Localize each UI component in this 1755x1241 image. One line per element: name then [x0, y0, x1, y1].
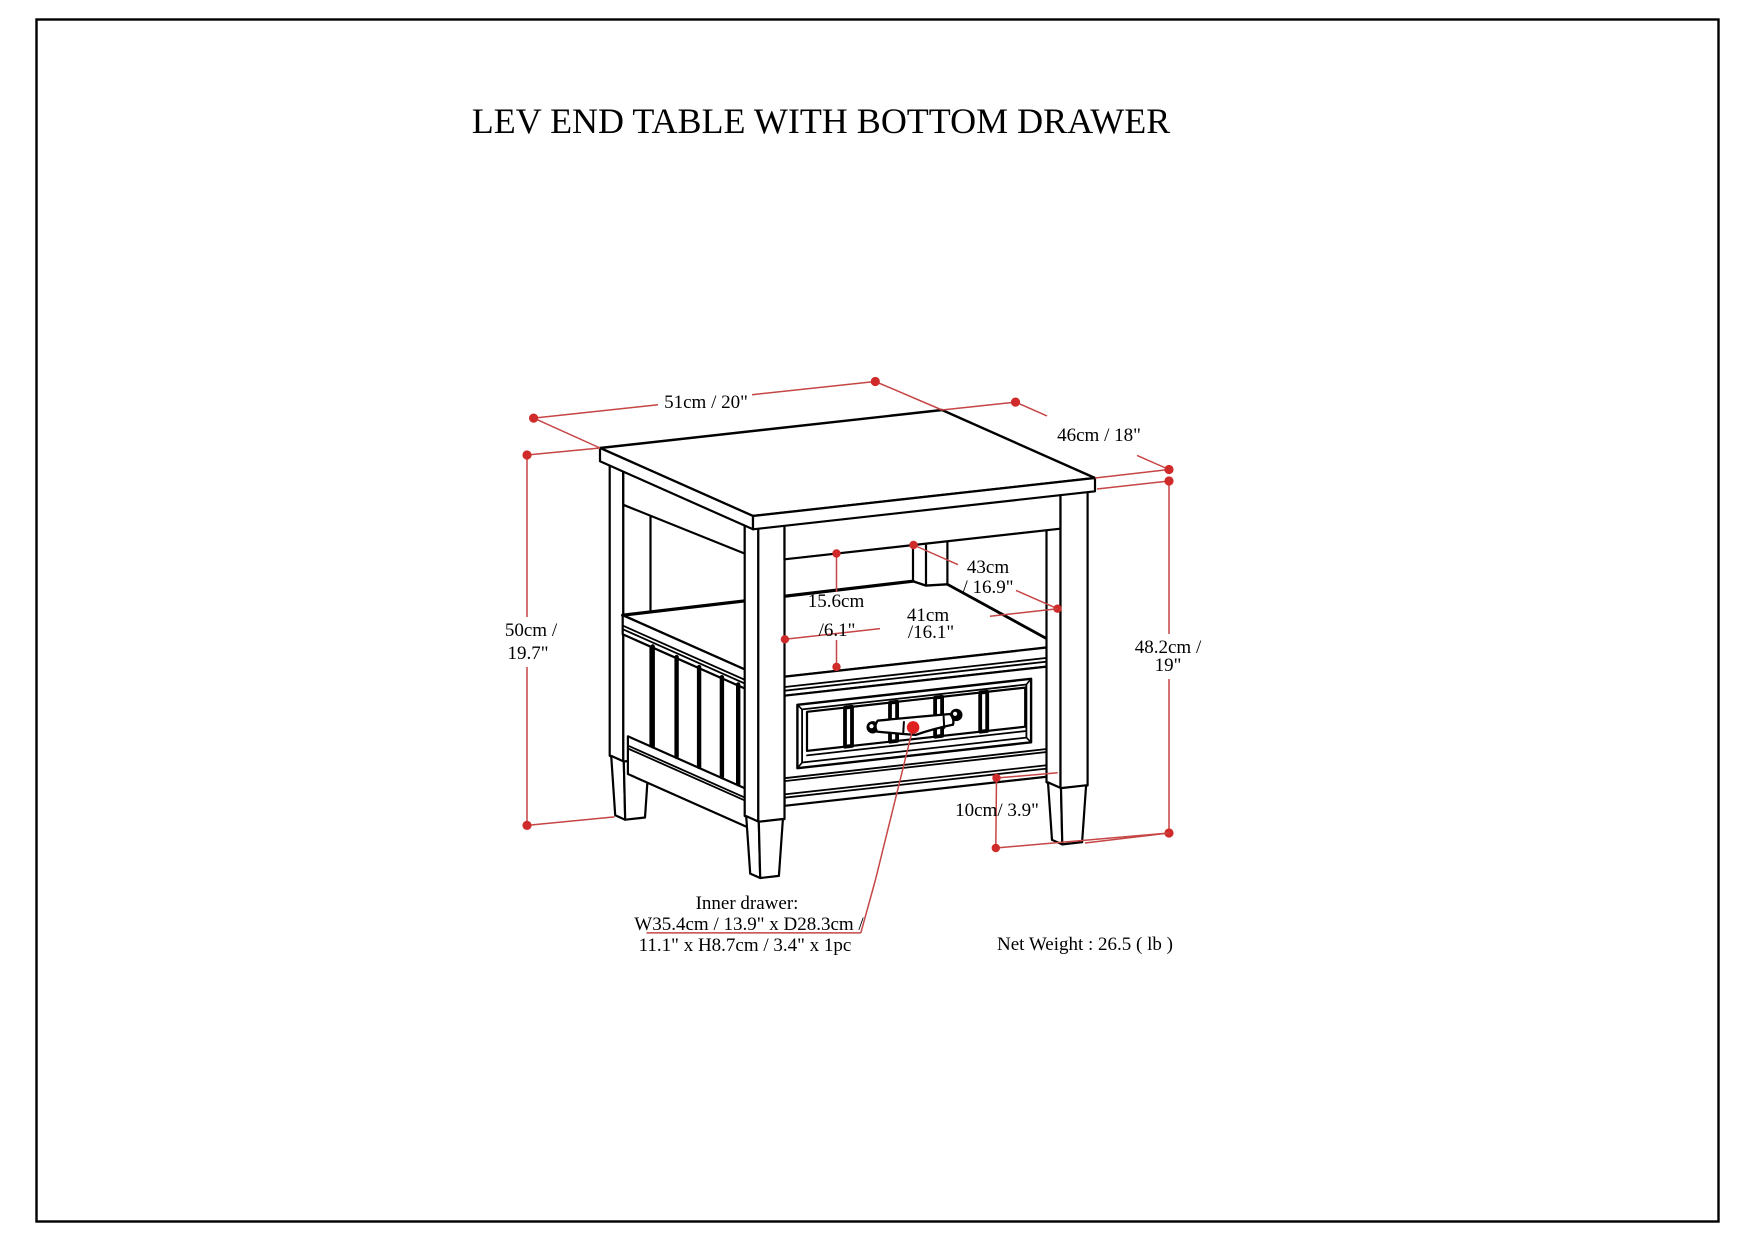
svg-text:19.7": 19.7"	[507, 643, 548, 664]
svg-text:19": 19"	[1155, 655, 1182, 676]
svg-text:/16.1": /16.1"	[908, 622, 954, 643]
svg-text:46cm / 18": 46cm / 18"	[1057, 425, 1141, 446]
svg-text:Net Weight : 26.5 ( lb ): Net Weight : 26.5 ( lb )	[997, 934, 1173, 955]
svg-text:/ 16.9": / 16.9"	[962, 577, 1013, 598]
svg-text:10cm/ 3.9": 10cm/ 3.9"	[955, 800, 1039, 821]
svg-text:W35.4cm / 13.9" x D28.3cm /: W35.4cm / 13.9" x D28.3cm /	[634, 914, 864, 935]
svg-text:50cm /: 50cm /	[505, 620, 558, 641]
svg-text:LEV END TABLE WITH BOTTOM DRAW: LEV END TABLE WITH BOTTOM DRAWER	[472, 101, 1171, 141]
svg-text:/6.1": /6.1"	[819, 620, 856, 641]
svg-text:51cm / 20": 51cm / 20"	[664, 392, 748, 413]
svg-text:43cm: 43cm	[967, 557, 1009, 578]
svg-text:Inner drawer:: Inner drawer:	[696, 893, 799, 914]
svg-text:15.6cm: 15.6cm	[808, 591, 865, 612]
svg-text:11.1" x H8.7cm / 3.4" x 1pc: 11.1" x H8.7cm / 3.4" x 1pc	[639, 935, 852, 956]
